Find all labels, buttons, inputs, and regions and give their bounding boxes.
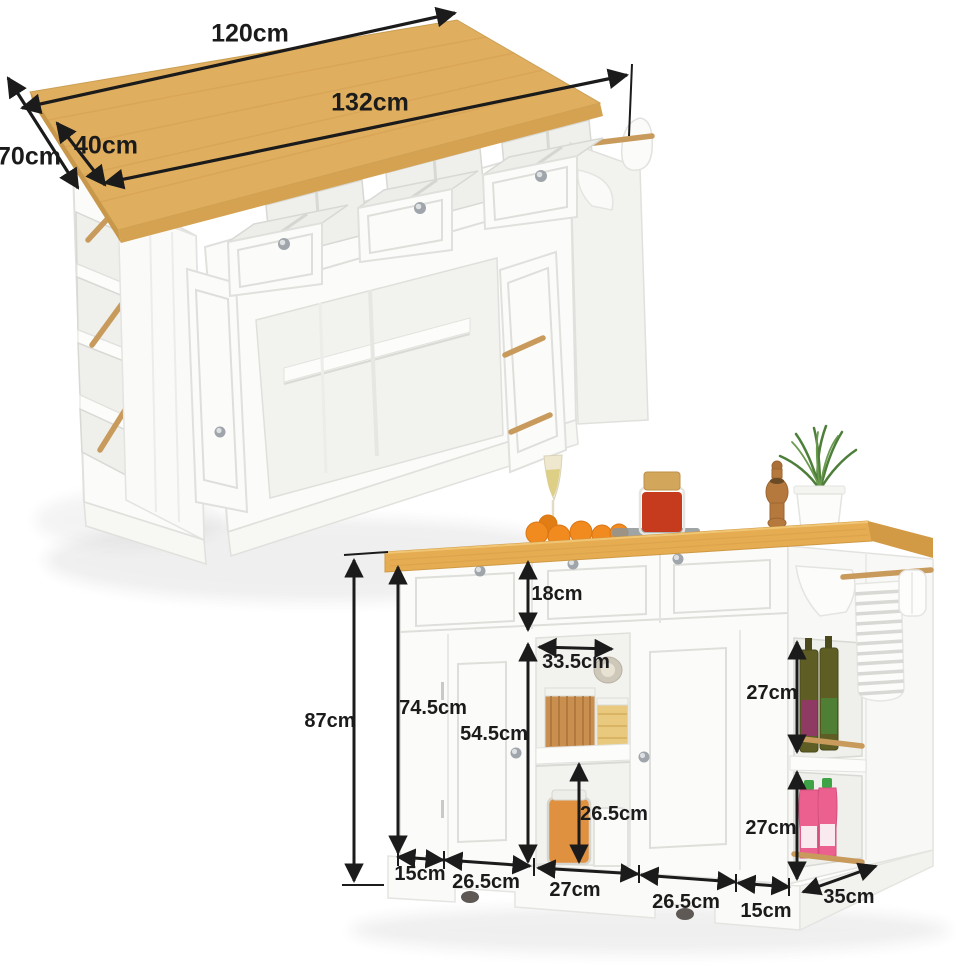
dim-drawer-height: 18cm (531, 584, 582, 604)
dim-total-width: 132cm (331, 91, 409, 116)
kitchen-island-dimension-diagram: 120cm 132cm 40cm 70cm 18cm 33.5cm 54.5cm… (0, 0, 970, 971)
illustration (0, 0, 970, 971)
dim-base-right-door: 26.5cm (652, 892, 720, 912)
spice-jar (640, 472, 684, 534)
dim-body-height: 74.5cm (399, 698, 467, 718)
snack-container (597, 702, 628, 748)
dim-inner-height: 54.5cm (460, 724, 528, 744)
towel (854, 581, 905, 701)
dim-overhang-depth: 40cm (74, 134, 138, 159)
dim-side-shelf-bottom: 27cm (745, 818, 796, 838)
dim-side-depth: 35cm (823, 887, 874, 907)
open-door-right (500, 252, 566, 472)
dim-total-height: 87cm (304, 711, 355, 731)
dim-base-left-door: 26.5cm (452, 872, 520, 892)
dim-opening-width: 33.5cm (542, 652, 610, 672)
potted-rosemary (780, 426, 856, 528)
sauce-bottles (799, 778, 837, 858)
dim-top-depth: 70cm (0, 145, 61, 170)
dim-base-left-stile: 15cm (394, 864, 445, 884)
front-side-rack (788, 546, 933, 884)
dim-base-right-stile: 15cm (740, 901, 791, 921)
pasta-container (545, 692, 595, 748)
dim-top-width: 120cm (211, 22, 289, 47)
dim-side-shelf-top: 27cm (746, 683, 797, 703)
arrow-33.5cm (539, 647, 612, 649)
dim-lower-opening: 26.5cm (580, 804, 648, 824)
open-door-left (187, 269, 247, 512)
towel-bar-bracket (622, 118, 653, 170)
cabinet-right-side (570, 118, 652, 424)
pepper-grinder (766, 461, 788, 528)
dim-base-middle: 27cm (549, 880, 600, 900)
